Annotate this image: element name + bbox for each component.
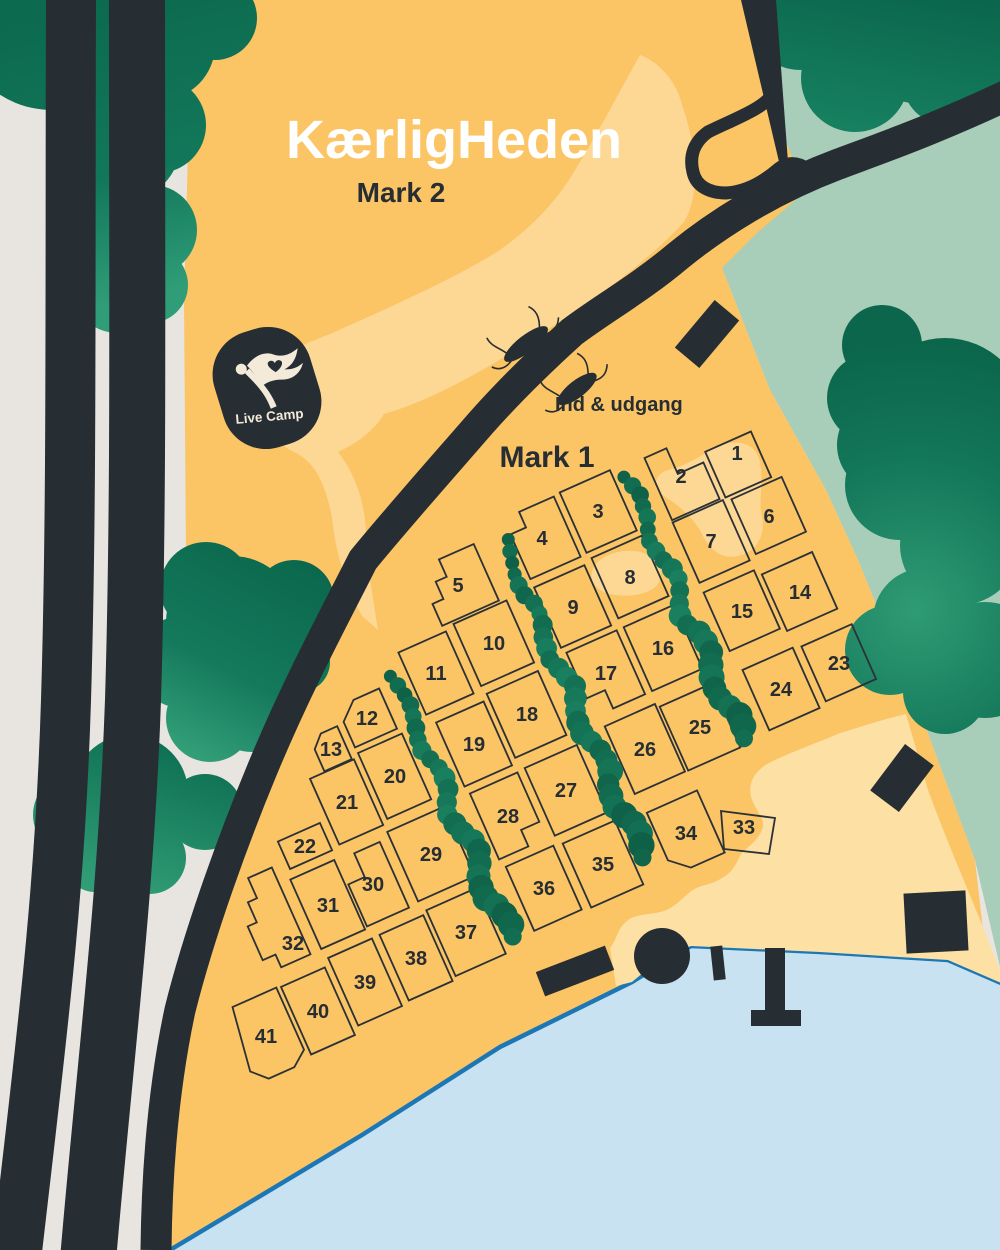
svg-text:7: 7 bbox=[705, 531, 716, 553]
svg-text:10: 10 bbox=[483, 633, 505, 655]
svg-text:27: 27 bbox=[555, 780, 577, 802]
svg-text:13: 13 bbox=[320, 739, 342, 761]
svg-text:21: 21 bbox=[336, 792, 358, 814]
svg-text:3: 3 bbox=[592, 501, 603, 523]
svg-text:32: 32 bbox=[282, 933, 304, 955]
svg-text:31: 31 bbox=[317, 895, 339, 917]
svg-text:25: 25 bbox=[689, 717, 711, 739]
svg-text:38: 38 bbox=[405, 948, 427, 970]
svg-text:8: 8 bbox=[624, 567, 635, 589]
svg-text:KærligHeden: KærligHeden bbox=[286, 110, 622, 170]
svg-text:12: 12 bbox=[356, 708, 378, 730]
svg-text:9: 9 bbox=[567, 597, 578, 619]
svg-text:1: 1 bbox=[731, 443, 742, 465]
svg-text:34: 34 bbox=[675, 823, 698, 845]
svg-text:39: 39 bbox=[354, 972, 376, 994]
svg-text:6: 6 bbox=[763, 506, 774, 528]
svg-text:29: 29 bbox=[420, 844, 442, 866]
svg-text:4: 4 bbox=[536, 528, 548, 550]
svg-text:11: 11 bbox=[425, 663, 446, 685]
svg-text:37: 37 bbox=[455, 922, 477, 944]
svg-text:33: 33 bbox=[733, 817, 755, 839]
svg-text:14: 14 bbox=[789, 582, 812, 604]
svg-text:17: 17 bbox=[595, 663, 617, 685]
svg-text:41: 41 bbox=[255, 1026, 277, 1048]
svg-text:28: 28 bbox=[497, 806, 519, 828]
svg-text:36: 36 bbox=[533, 878, 555, 900]
svg-text:16: 16 bbox=[652, 638, 674, 660]
svg-text:35: 35 bbox=[592, 854, 614, 876]
svg-text:15: 15 bbox=[731, 601, 753, 623]
svg-text:18: 18 bbox=[516, 704, 538, 726]
svg-text:22: 22 bbox=[294, 836, 316, 858]
svg-text:23: 23 bbox=[828, 653, 850, 675]
svg-text:20: 20 bbox=[384, 766, 406, 788]
svg-text:Mark 1: Mark 1 bbox=[499, 441, 594, 474]
svg-text:40: 40 bbox=[307, 1001, 329, 1023]
svg-text:2: 2 bbox=[675, 466, 686, 488]
svg-text:26: 26 bbox=[634, 739, 656, 761]
svg-text:5: 5 bbox=[452, 575, 463, 597]
svg-text:Mark 2: Mark 2 bbox=[357, 177, 446, 208]
svg-text:30: 30 bbox=[362, 874, 384, 896]
svg-text:19: 19 bbox=[463, 734, 485, 756]
svg-text:Ind & udgang: Ind & udgang bbox=[555, 394, 683, 416]
svg-text:24: 24 bbox=[770, 679, 793, 701]
